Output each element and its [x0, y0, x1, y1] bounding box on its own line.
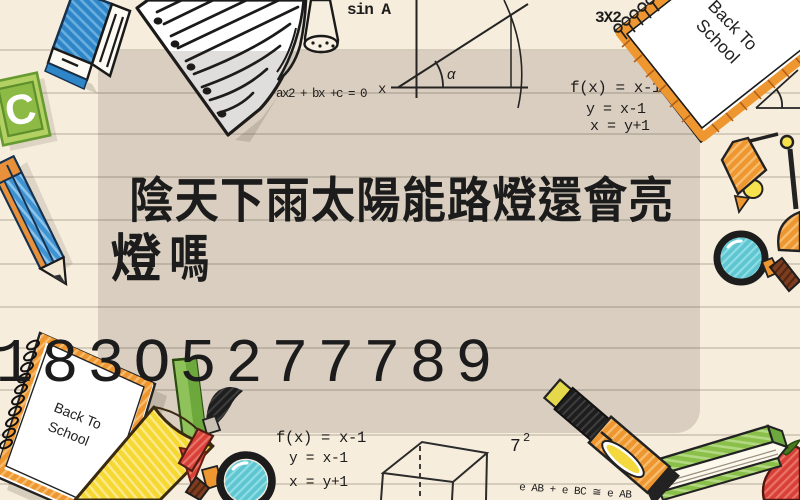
svg-text:1: 1: [0, 329, 33, 400]
svg-text:9: 9: [455, 329, 492, 400]
svg-text:3: 3: [87, 329, 124, 400]
svg-text:7: 7: [317, 329, 354, 400]
svg-text:sin A: sin A: [347, 1, 391, 19]
svg-text:7: 7: [510, 437, 521, 457]
svg-text:y = x-1: y = x-1: [289, 451, 348, 467]
svg-text:O: O: [133, 329, 170, 400]
svg-text:8: 8: [409, 329, 446, 400]
svg-text:2: 2: [523, 431, 530, 445]
svg-text:7: 7: [271, 329, 308, 400]
svg-text:8: 8: [41, 329, 78, 400]
svg-text:2: 2: [225, 329, 262, 400]
svg-text:7: 7: [363, 329, 400, 400]
svg-text:5: 5: [179, 329, 216, 400]
svg-text:x = y+1: x = y+1: [289, 475, 348, 491]
